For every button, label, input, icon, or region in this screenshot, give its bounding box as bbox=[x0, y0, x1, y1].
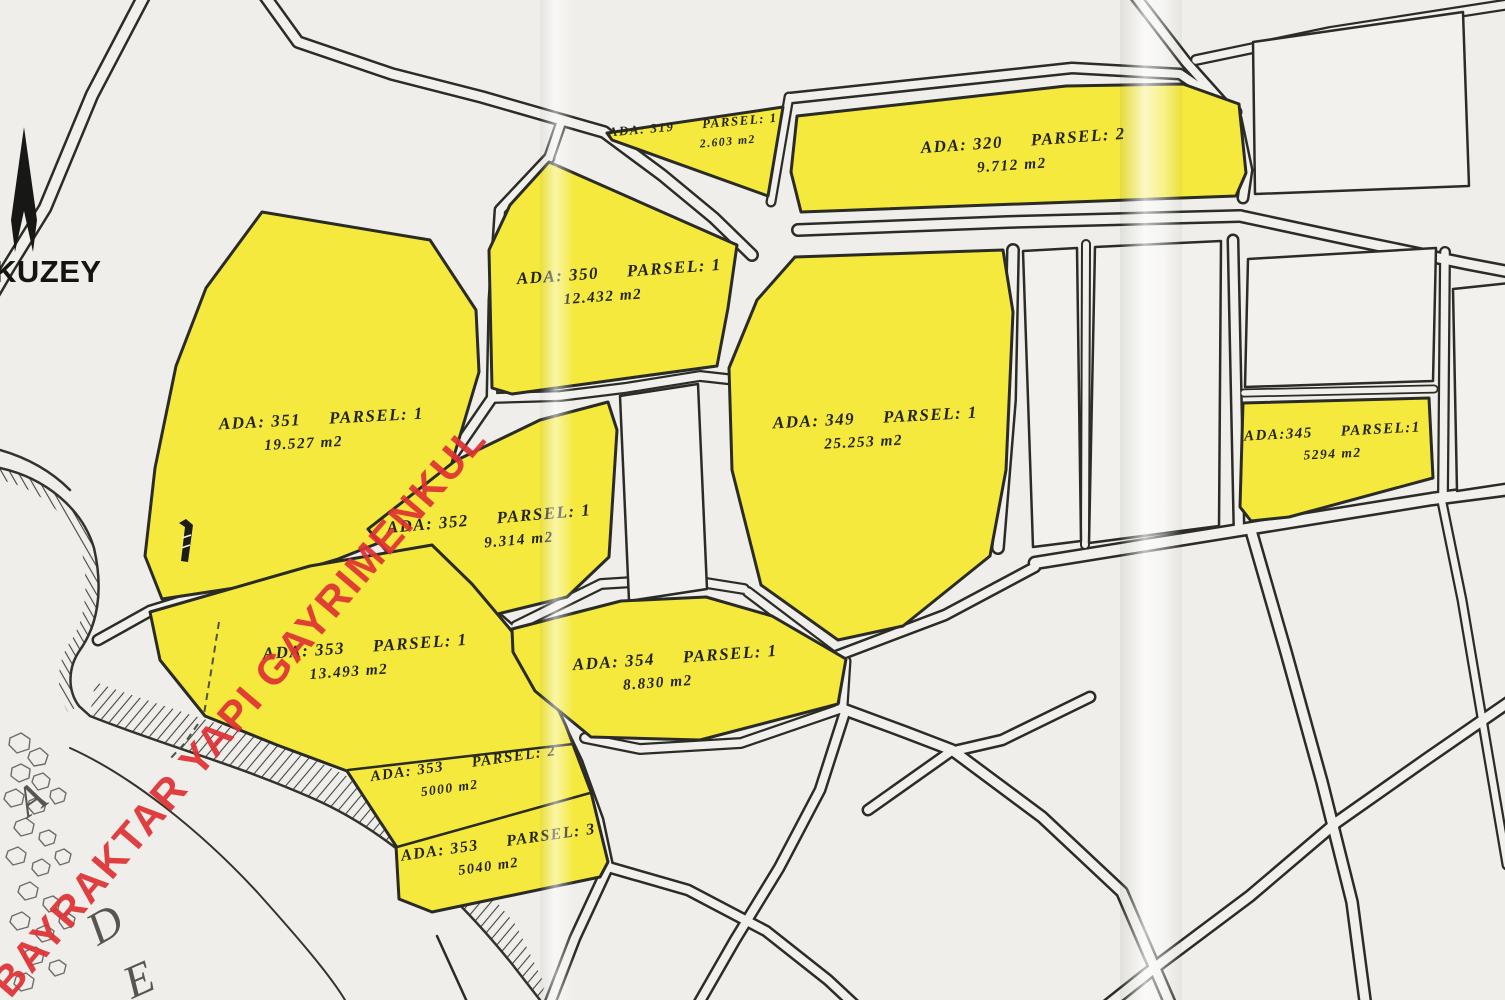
stream-hachure-band bbox=[0, 468, 99, 712]
compass-label: KUZEY bbox=[0, 254, 102, 289]
cadastral-map-canvas: KUZEY A D E bbox=[0, 0, 1505, 1000]
stream-letter: E bbox=[114, 950, 161, 1000]
parcel-ada: ADA: 349 bbox=[772, 409, 855, 432]
parcel-parsel: PARSEL: 1 bbox=[329, 404, 425, 428]
stream-letter: A bbox=[5, 774, 55, 828]
parcel-parsel: PARSEL:1 bbox=[1340, 419, 1421, 439]
cadastral-map-scan: KUZEY A D E ADA: 319PARSEL: 1 2.603 m2 A… bbox=[0, 0, 1505, 1000]
parcel-parsel: PARSEL: 1 bbox=[883, 403, 979, 427]
parcel-ada: ADA:345 bbox=[1244, 425, 1314, 445]
parcel-ada: ADA: 351 bbox=[218, 410, 301, 433]
